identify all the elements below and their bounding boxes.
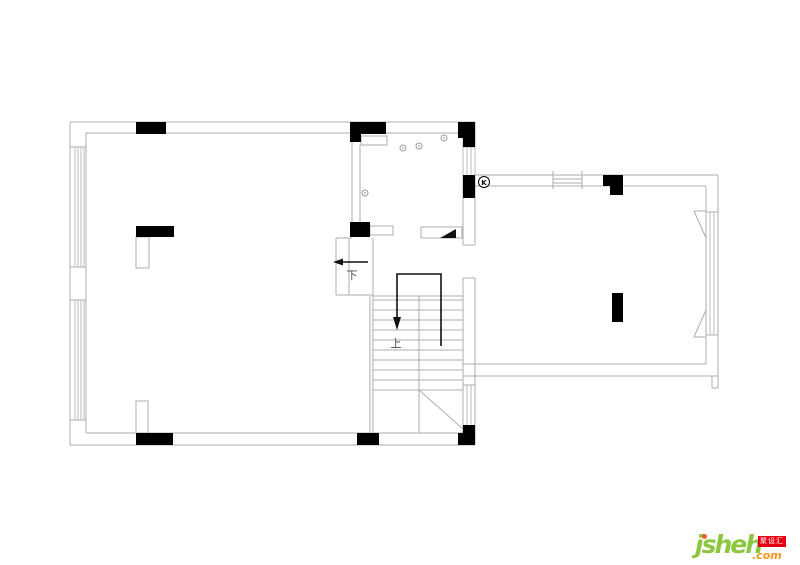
stair-down-arrow: [333, 259, 368, 266]
watermark-logo: jsheh 聚设汇 .com: [695, 531, 800, 564]
gas-meter-label: K: [481, 179, 487, 187]
gas-meter-symbol: K: [479, 177, 490, 188]
walls: [70, 122, 718, 445]
staircase: [373, 296, 463, 433]
stair-break-line: [419, 390, 463, 429]
logo-j-dot-icon: [702, 534, 707, 539]
floor-plan-canvas: 下 上 K jsheh 聚设汇 .com: [0, 0, 800, 565]
stair-down-label: 下: [347, 269, 358, 282]
logo-badge: 聚设汇: [758, 536, 786, 547]
structural-columns: [136, 122, 623, 445]
stair-up-label: 上: [391, 337, 402, 350]
logo-tld: .com: [752, 549, 782, 562]
floor-plan-drawing: 下 上 K: [0, 0, 800, 565]
wall-stubs: [136, 136, 462, 433]
